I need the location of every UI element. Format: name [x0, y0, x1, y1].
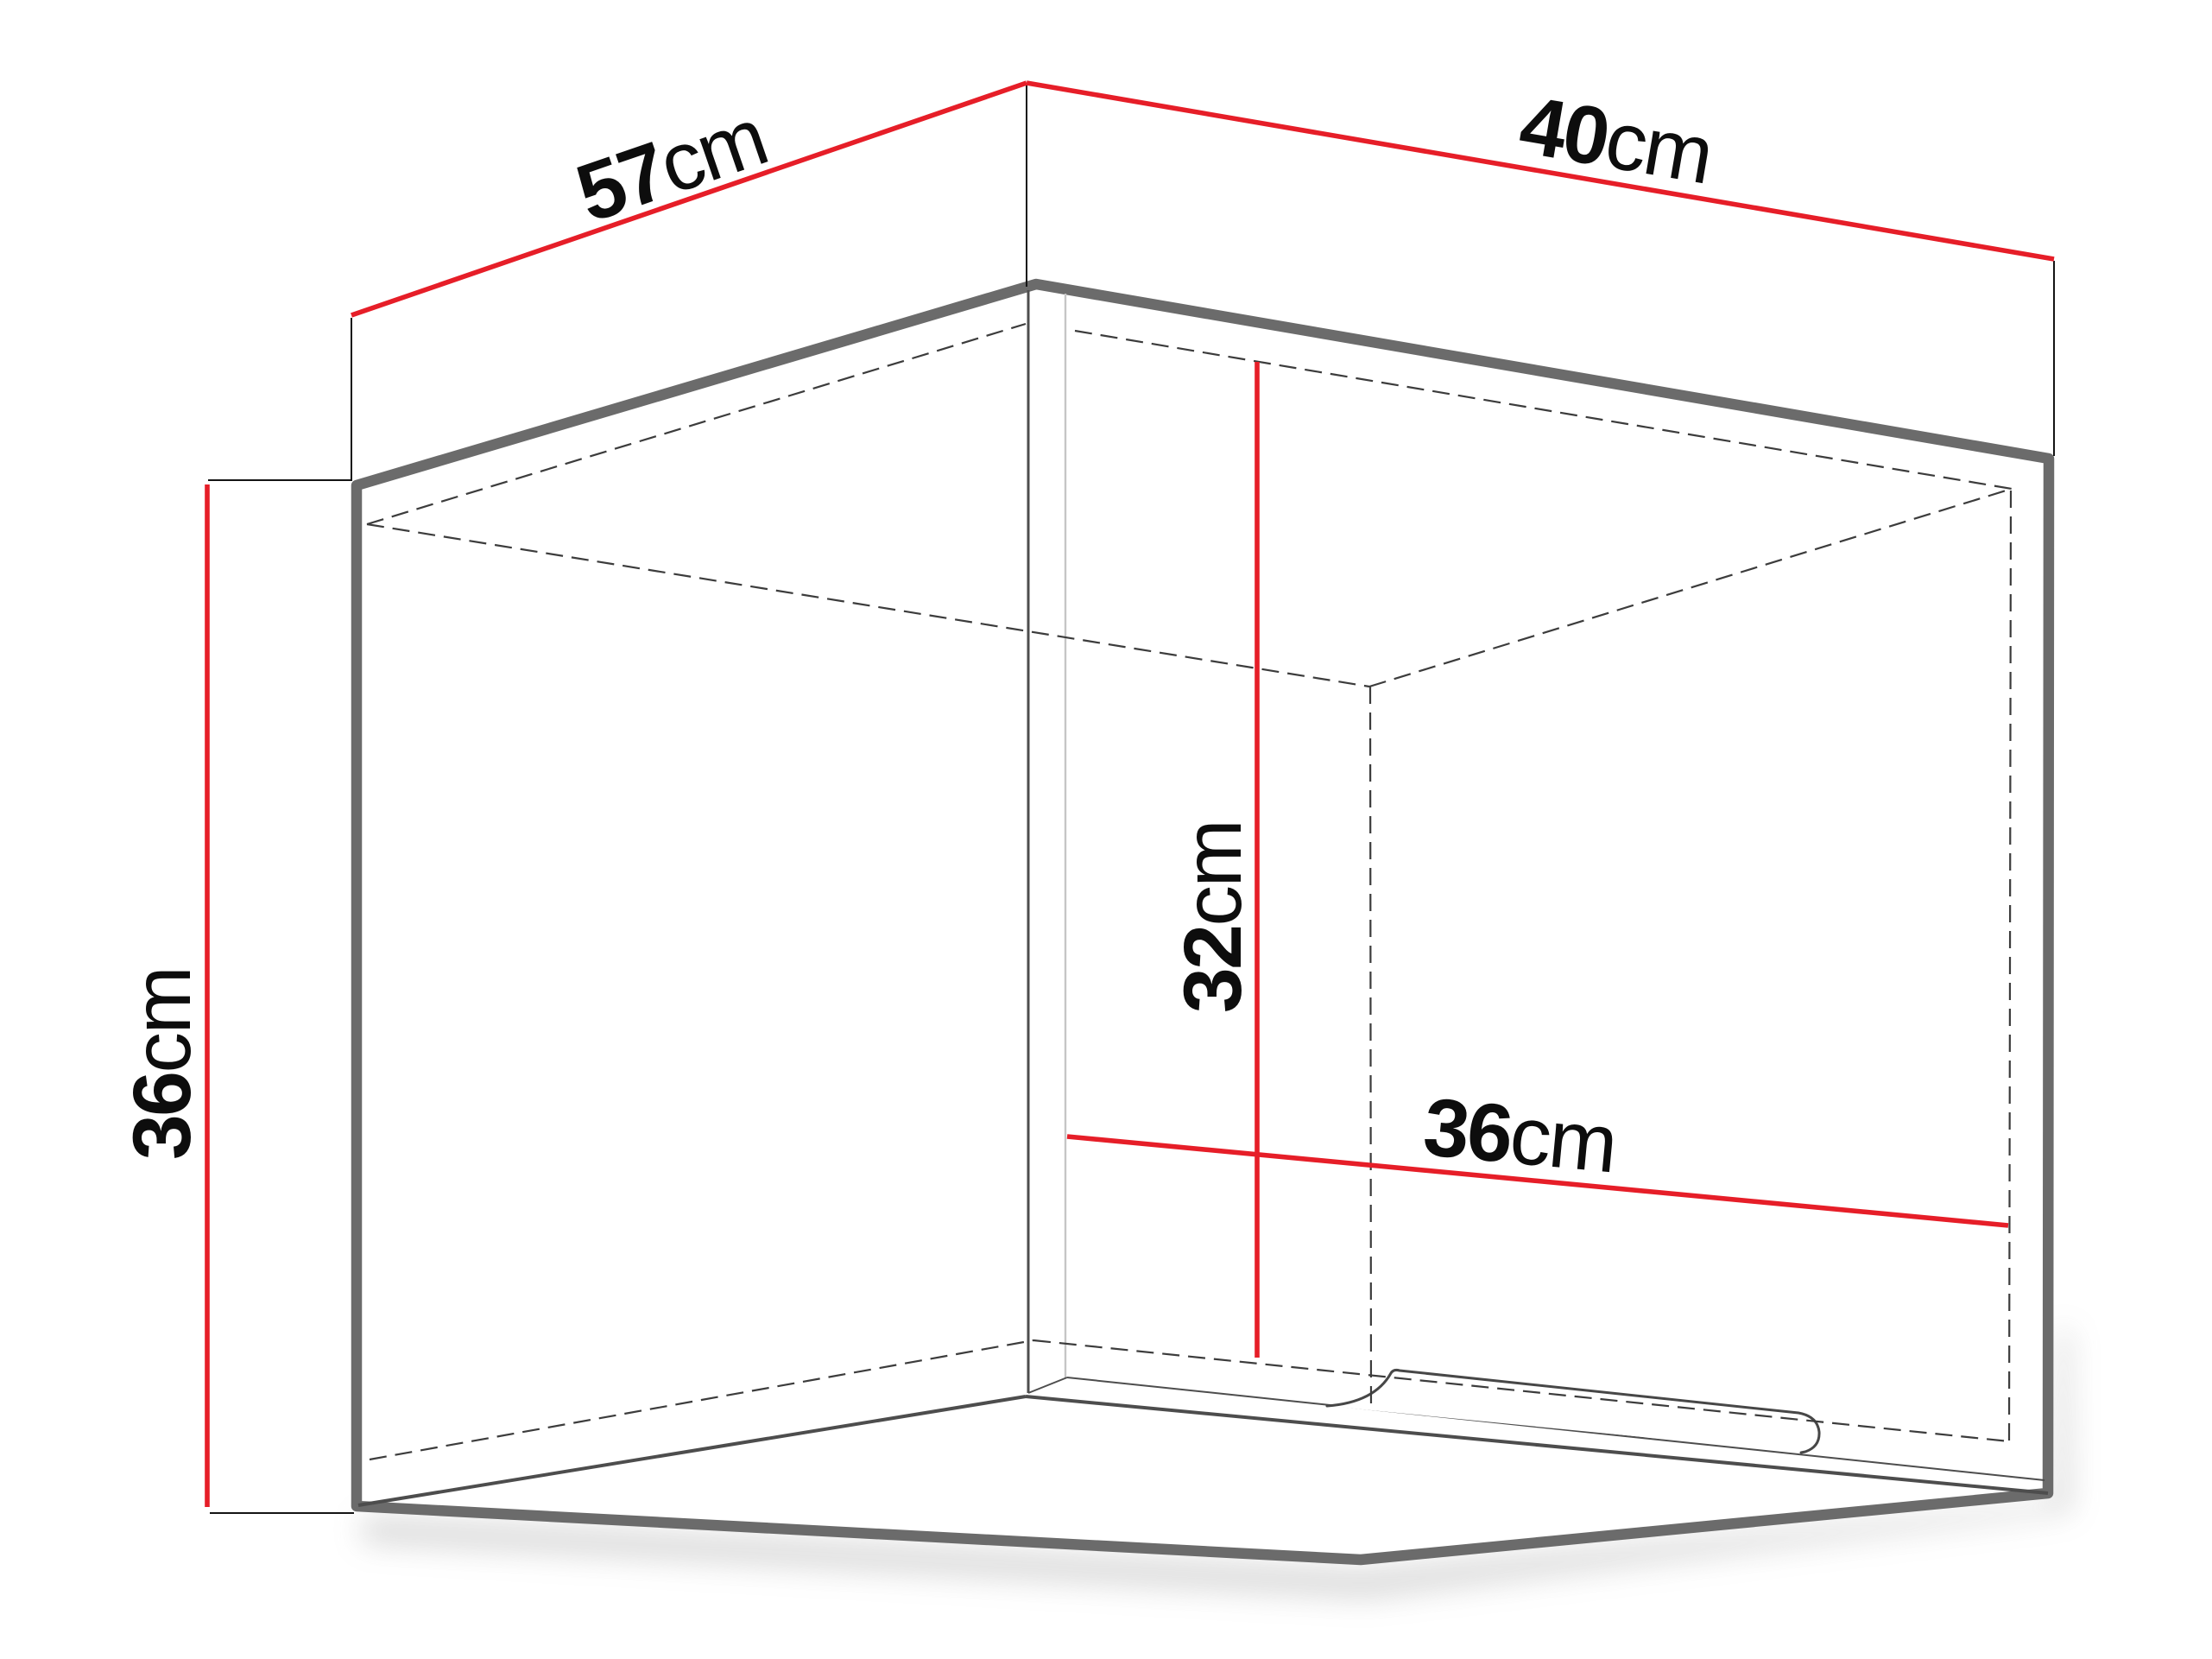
svg-text:32cm: 32cm	[1167, 821, 1259, 1013]
svg-text:40cm: 40cm	[1514, 79, 1718, 201]
svg-text:36cm: 36cm	[1419, 1081, 1619, 1190]
svg-text:36cm: 36cm	[117, 968, 208, 1160]
svg-text:57cm: 57cm	[566, 91, 777, 240]
